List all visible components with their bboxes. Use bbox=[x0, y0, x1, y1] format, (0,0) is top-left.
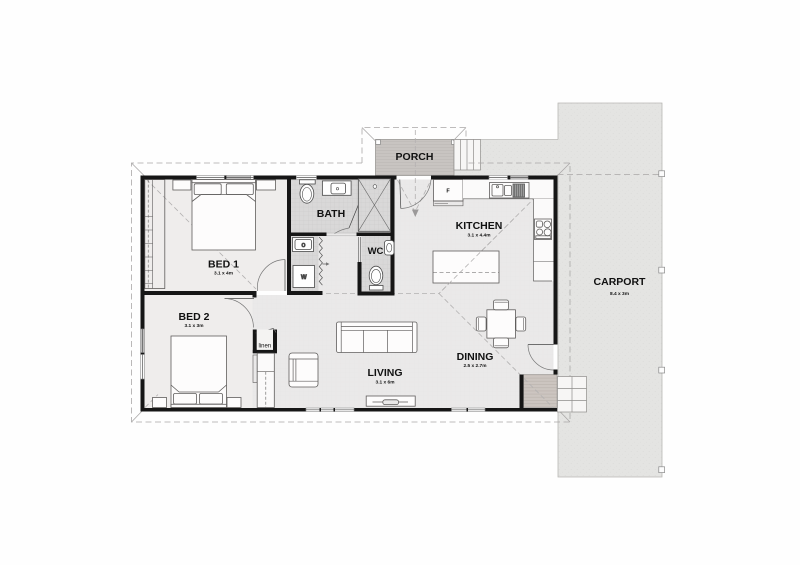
svg-text:3.1 x 3m: 3.1 x 3m bbox=[185, 323, 204, 329]
svg-text:PORCH: PORCH bbox=[396, 151, 434, 163]
svg-text:BED 2: BED 2 bbox=[179, 311, 210, 323]
svg-text:CARPORT: CARPORT bbox=[594, 276, 647, 288]
svg-text:DINING: DINING bbox=[457, 351, 494, 363]
svg-text:3.1 x 4.4m: 3.1 x 4.4m bbox=[468, 233, 491, 239]
svg-text:LIVING: LIVING bbox=[367, 367, 402, 379]
svg-text:W: W bbox=[301, 275, 307, 281]
svg-text:BATH: BATH bbox=[317, 208, 345, 220]
svg-text:linen: linen bbox=[258, 344, 271, 350]
svg-text:3.1 x 6m: 3.1 x 6m bbox=[376, 380, 395, 386]
svg-text:KITCHEN: KITCHEN bbox=[456, 220, 503, 232]
svg-text:BED 1: BED 1 bbox=[208, 259, 239, 271]
svg-text:O: O bbox=[302, 243, 306, 249]
svg-text:WC: WC bbox=[368, 246, 384, 257]
svg-text:8.4 x 3m: 8.4 x 3m bbox=[610, 291, 629, 297]
svg-text:2.5 x 2.7m: 2.5 x 2.7m bbox=[464, 363, 487, 369]
svg-text:3.1 x 4m: 3.1 x 4m bbox=[214, 271, 233, 277]
